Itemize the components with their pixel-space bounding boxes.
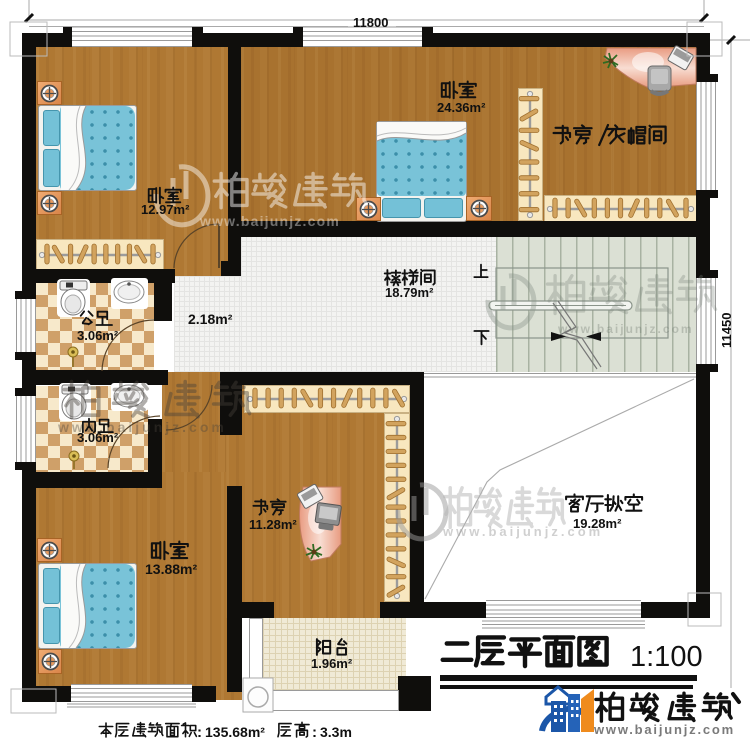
svg-text:11450: 11450 — [719, 313, 734, 348]
svg-text:24.36m²: 24.36m² — [437, 100, 486, 115]
svg-text:1:100: 1:100 — [630, 641, 703, 673]
svg-text:3.3m: 3.3m — [320, 724, 352, 740]
svg-text:www.baijunjz.com: www.baijunjz.com — [557, 322, 694, 336]
svg-text:11.28m²: 11.28m² — [249, 517, 297, 532]
svg-text:13.88m²: 13.88m² — [145, 561, 197, 577]
svg-text:1.96m²: 1.96m² — [311, 656, 353, 671]
svg-text::: : — [197, 724, 202, 741]
svg-text:135.68m²: 135.68m² — [205, 724, 265, 740]
svg-text::: : — [312, 724, 317, 741]
svg-text:3.06m²: 3.06m² — [77, 328, 119, 343]
svg-text:2.18m²: 2.18m² — [188, 311, 233, 327]
svg-text:3.06m²: 3.06m² — [77, 430, 119, 445]
svg-text:19.28m²: 19.28m² — [573, 516, 622, 531]
svg-text:www.baijunjz.com: www.baijunjz.com — [593, 722, 735, 737]
svg-text:11800: 11800 — [353, 15, 388, 30]
svg-text:www.baijunjz.com: www.baijunjz.com — [199, 213, 340, 229]
svg-text:12.97m²: 12.97m² — [141, 202, 190, 217]
svg-text:18.79m²: 18.79m² — [385, 285, 434, 300]
